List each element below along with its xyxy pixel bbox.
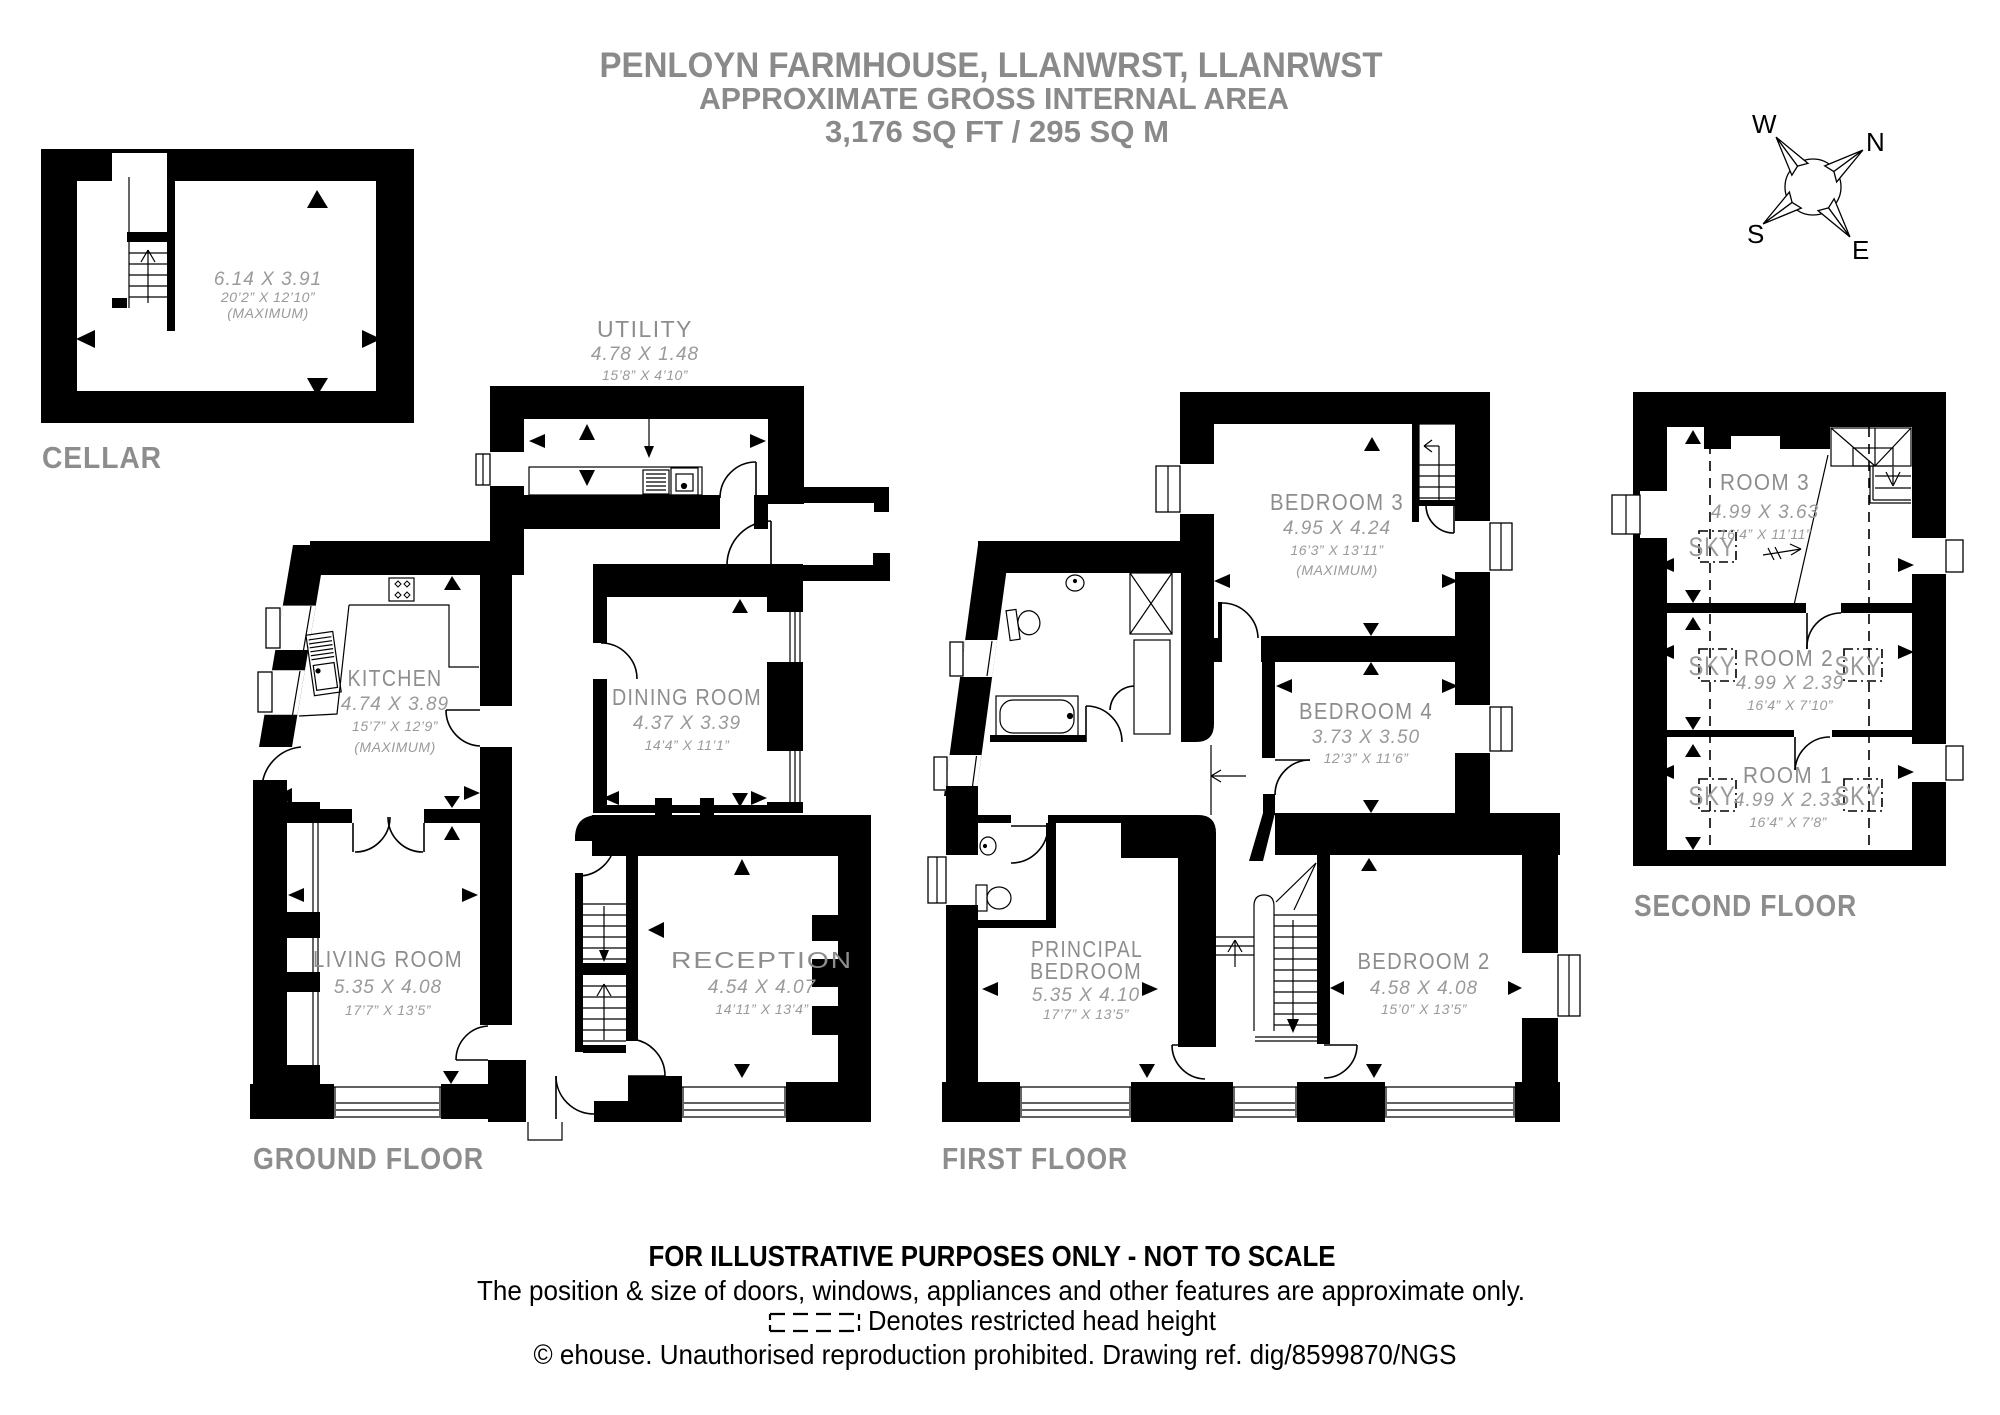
- svg-text:SKY: SKY: [1689, 651, 1736, 681]
- svg-text:4.74 X 3.89: 4.74 X 3.89: [341, 694, 449, 715]
- svg-text:N: N: [1866, 127, 1885, 157]
- svg-text:5.35 X 4.08: 5.35 X 4.08: [334, 977, 442, 998]
- svg-text:© ehouse. Unauthorised reprodu: © ehouse. Unauthorised reproduction proh…: [534, 1339, 1457, 1370]
- svg-text:14’11” X 13’4”: 14’11” X 13’4”: [715, 1001, 809, 1017]
- svg-text:3,176 SQ FT / 295 SQ M: 3,176 SQ FT / 295 SQ M: [825, 114, 1169, 149]
- svg-text:14’4” X 11’1”: 14’4” X 11’1”: [645, 737, 731, 753]
- svg-text:15’0” X 13’5”: 15’0” X 13’5”: [1381, 1001, 1468, 1017]
- svg-text:4.58 X 4.08: 4.58 X 4.08: [1370, 978, 1478, 999]
- svg-text:SKY: SKY: [1689, 781, 1736, 811]
- svg-text:6.14 X 3.91: 6.14 X 3.91: [214, 269, 322, 290]
- svg-text:4.99 X 3.63: 4.99 X 3.63: [1711, 502, 1819, 523]
- svg-text:ROOM 1: ROOM 1: [1743, 762, 1833, 788]
- svg-text:RECEPTION: RECEPTION: [671, 947, 853, 973]
- svg-text:BEDROOM 2: BEDROOM 2: [1358, 948, 1491, 974]
- svg-text:S: S: [1747, 219, 1764, 249]
- svg-text:4.37 X 3.39: 4.37 X 3.39: [633, 713, 741, 734]
- svg-text:5.35 X 4.10: 5.35 X 4.10: [1032, 985, 1140, 1006]
- svg-text:BEDROOM: BEDROOM: [1030, 958, 1142, 984]
- svg-text:UTILITY: UTILITY: [597, 316, 693, 342]
- svg-text:(MAXIMUM): (MAXIMUM): [227, 305, 309, 321]
- svg-text:(MAXIMUM): (MAXIMUM): [1296, 562, 1378, 578]
- svg-text:ROOM 2: ROOM 2: [1744, 645, 1834, 671]
- svg-text:4.99 X 2.39: 4.99 X 2.39: [1736, 673, 1844, 694]
- svg-text:E: E: [1852, 235, 1869, 265]
- svg-text:DINING ROOM: DINING ROOM: [612, 684, 762, 710]
- svg-text:17’7” X 13’5”: 17’7” X 13’5”: [345, 1002, 432, 1018]
- svg-text:16’4” X 7’10”: 16’4” X 7’10”: [1747, 697, 1834, 713]
- svg-text:FIRST FLOOR: FIRST FLOOR: [942, 1141, 1128, 1176]
- svg-text:PENLOYN FARMHOUSE, LLANWRST, L: PENLOYN FARMHOUSE, LLANWRST, LLANRWST: [600, 46, 1383, 85]
- svg-text:4.54 X 4.07: 4.54 X 4.07: [708, 977, 817, 998]
- svg-text:15’8” X 4’10”: 15’8” X 4’10”: [602, 367, 689, 383]
- svg-text:16’3” X 13’11”: 16’3” X 13’11”: [1290, 542, 1384, 558]
- svg-text:16’4” X 7’8”: 16’4” X 7’8”: [1749, 814, 1827, 830]
- svg-text:LIVING ROOM: LIVING ROOM: [313, 946, 463, 972]
- svg-text:BEDROOM 3: BEDROOM 3: [1270, 489, 1404, 515]
- svg-text:CELLAR: CELLAR: [42, 440, 162, 475]
- svg-text:Denotes restricted head height: Denotes restricted head height: [868, 1305, 1216, 1336]
- svg-text:W: W: [1752, 109, 1777, 139]
- svg-text:16’4” X 11’11”: 16’4” X 11’11”: [1719, 526, 1812, 542]
- svg-text:GROUND FLOOR: GROUND FLOOR: [253, 1141, 484, 1176]
- svg-text:3.73 X 3.50: 3.73 X 3.50: [1312, 727, 1420, 748]
- svg-text:17’7” X 13’5”: 17’7” X 13’5”: [1043, 1006, 1130, 1022]
- svg-text:4.99 X 2.33: 4.99 X 2.33: [1734, 790, 1842, 811]
- svg-text:12’3” X 11’6”: 12’3” X 11’6”: [1324, 750, 1410, 766]
- svg-text:4.95 X 4.24: 4.95 X 4.24: [1283, 518, 1391, 539]
- svg-text:The position & size of doors,: The position & size of doors, windows, a…: [477, 1275, 1525, 1306]
- svg-text:FOR ILLUSTRATIVE PURPOSES ONLY: FOR ILLUSTRATIVE PURPOSES ONLY - NOT TO …: [649, 1241, 1336, 1273]
- svg-text:KITCHEN: KITCHEN: [348, 665, 443, 691]
- svg-text:15’7” X 12’9”: 15’7” X 12’9”: [352, 718, 439, 734]
- svg-text:SECOND FLOOR: SECOND FLOOR: [1634, 888, 1857, 923]
- svg-text:ROOM 3: ROOM 3: [1720, 469, 1810, 495]
- svg-text:(MAXIMUM): (MAXIMUM): [354, 739, 436, 755]
- svg-text:APPROXIMATE GROSS INTERNAL ARE: APPROXIMATE GROSS INTERNAL AREA: [699, 81, 1289, 116]
- svg-text:BEDROOM 4: BEDROOM 4: [1299, 698, 1433, 724]
- svg-text:20’2” X 12’10”: 20’2” X 12’10”: [220, 289, 316, 305]
- svg-text:4.78 X 1.48: 4.78 X 1.48: [591, 344, 699, 365]
